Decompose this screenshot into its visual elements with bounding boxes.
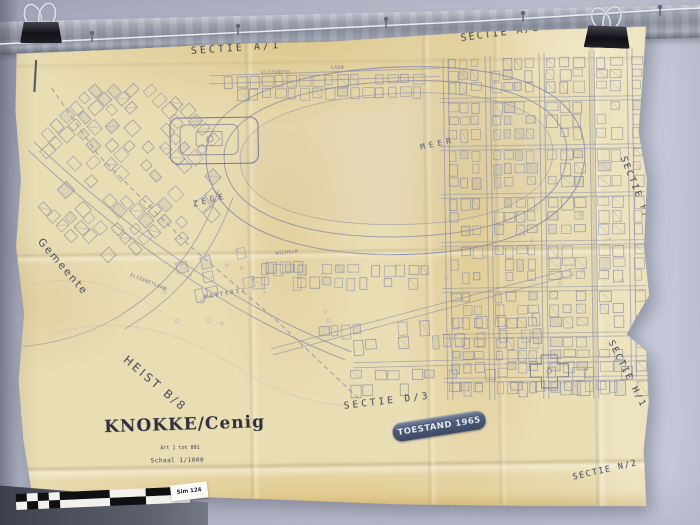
scale-segment: [38, 501, 49, 509]
street-label-elizabeth: ELIZABETH: [261, 71, 290, 76]
scale-segment: [16, 502, 27, 510]
binder-clip-right: [582, 4, 642, 54]
photo-of-wall-map: SECTIE A/1 SECTIE A/2 SECTIE F/1 SECTIE …: [0, 0, 700, 525]
map-subtitle: Art 1 tot 801: [160, 445, 199, 452]
map-paper: SECTIE A/1 SECTIE A/2 SECTIE F/1 SECTIE …: [9, 26, 656, 517]
clip-body: [584, 25, 631, 49]
scale-segment: [27, 501, 38, 509]
scale-segment: [49, 500, 60, 508]
clip-body: [20, 22, 62, 43]
scale-tag-text: Sim 124: [176, 487, 202, 496]
map-linework: [9, 26, 656, 517]
scale-segment: [110, 496, 146, 506]
binder-clip-left: [18, 0, 78, 50]
street-label-laan: LAAN: [331, 66, 344, 71]
map-scale-note: Schaal 1/1000: [151, 457, 205, 465]
map-sheet: SECTIE A/1 SECTIE A/2 SECTIE F/1 SECTIE …: [9, 26, 656, 517]
